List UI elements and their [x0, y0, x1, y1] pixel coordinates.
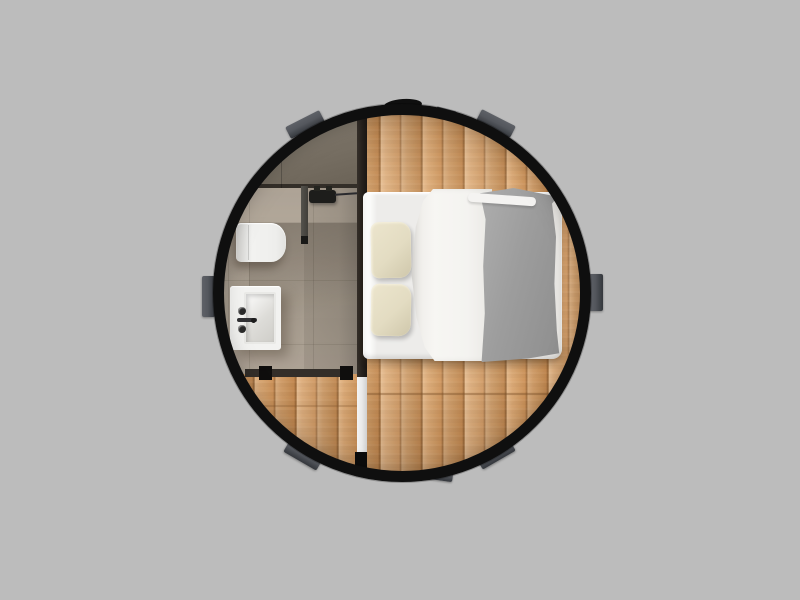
mounting-tab-right: [589, 274, 603, 311]
studio-backdrop: [0, 0, 800, 600]
pod-wall-ring: [213, 104, 591, 482]
